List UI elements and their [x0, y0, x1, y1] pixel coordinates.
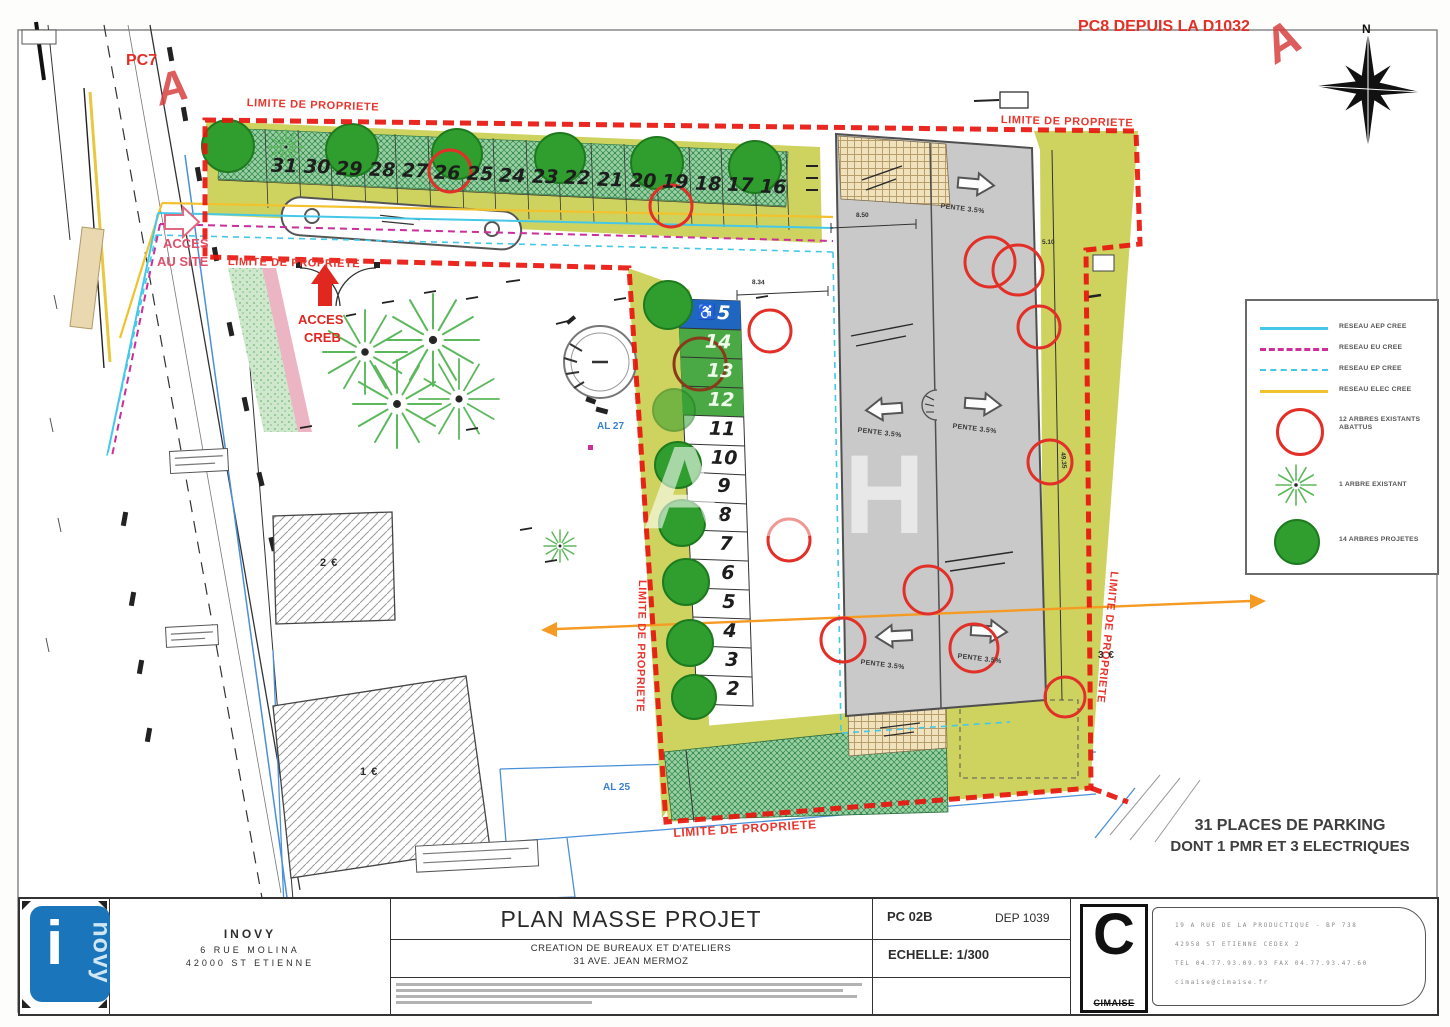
parcel-al27-label: AL 27 [597, 421, 624, 432]
parking-number: 4 [718, 620, 743, 643]
watermark-block [752, 462, 818, 536]
legend-existing-tree-icon [1272, 461, 1320, 509]
parking-number: 13 [707, 360, 732, 383]
parking-number: 30 [304, 156, 329, 179]
legend-line-eu [1260, 348, 1328, 351]
acces-site-label-1: ACCES [163, 236, 209, 251]
cimaise-logo-c: C [1093, 901, 1135, 968]
doc-number: PC 02B [887, 909, 933, 924]
building3-label: 3 € [1098, 650, 1115, 661]
pc8-label: PC8 DEPUIS LA D1032 [1078, 18, 1250, 36]
parking-number: 2 [721, 678, 746, 701]
parking-number: 29 [336, 158, 361, 181]
dim-834: 8.34 [752, 279, 765, 286]
cimaise-logo-name: CIMAISE [1083, 998, 1145, 1008]
parking-number: 25 [467, 163, 492, 186]
site-plan-sheet: PC7 A PC8 DEPUIS LA D1032 A N LIMITE DE … [0, 0, 1450, 1027]
watermark-letter-a: A [642, 420, 727, 556]
dim-510: 5.10 [1042, 239, 1055, 246]
drawing-subtitle2: 31 AVE. JEAN MERMOZ [390, 956, 872, 967]
parking-number: 27 [402, 160, 427, 183]
divider [390, 977, 1070, 978]
parking-number: 26 [434, 162, 459, 185]
cimaise-address1: 19 A RUE DE LA PRODUCTIQUE - BP 738 [1175, 922, 1357, 929]
parking-number: 6 [716, 562, 741, 585]
building2-label: 2 € [320, 557, 338, 569]
limite-label-mid-left: LIMITE DE PROPRIETE [228, 256, 361, 270]
parking-number: 19 [662, 171, 687, 194]
legend-projected-tree-icon [1274, 519, 1320, 565]
parking-number: 5 [717, 591, 742, 614]
parking-number: 18 [695, 173, 720, 196]
inovy-logo: i novy [30, 906, 110, 1002]
parking-number: 14 [705, 331, 730, 354]
divider [390, 939, 1070, 940]
drawing-title: PLAN MASSE PROJET [390, 906, 872, 933]
divider [872, 899, 873, 1014]
legend-line-elec [1260, 390, 1328, 393]
client-address2: 42000 ST ETIENNE [120, 958, 380, 968]
parking-number: 22 [564, 167, 589, 190]
drawing-subtitle1: CREATION DE BUREAUX ET D'ATELIERS [390, 943, 872, 954]
parking-number: 28 [369, 159, 394, 182]
disclaimer-text-block [396, 983, 862, 1007]
north-label: N [1362, 22, 1371, 36]
divider [1070, 899, 1071, 1014]
parcel-al25-label: AL 25 [603, 782, 630, 793]
inovy-logo-i: i [46, 908, 63, 979]
scale-label: ECHELLE: 1/300 [888, 947, 989, 962]
legend-line-ep [1260, 369, 1328, 371]
legend-felled-tree-icon [1276, 408, 1324, 456]
limite-label-mid-vertical: LIMITE DE PROPRIETE [634, 580, 648, 713]
legend-label: 14 ARBRES PROJETES [1339, 536, 1419, 544]
parking-note-line1: 31 PLACES DE PARKING [1140, 817, 1440, 835]
parking-number: 23 [532, 166, 557, 189]
acces-creb-label-1: ACCES [298, 312, 344, 327]
cimaise-address2: 42958 ST ETIENNE CEDEX 2 [1175, 941, 1300, 948]
legend-label: RESEAU ELEC CREE [1339, 386, 1411, 394]
parking-number: 31 [271, 155, 296, 178]
inovy-logo-novy: novy [87, 921, 116, 983]
corner-mark [22, 999, 31, 1008]
parking-number: 20 [630, 170, 655, 193]
parking-number: 17 [727, 174, 752, 197]
cimaise-email: cimaise@cimaise.fr [1175, 979, 1269, 986]
legend-line-aep [1260, 327, 1328, 330]
acces-creb-label-2: CREB [304, 330, 341, 345]
legend-box: RESEAU AEP CREE RESEAU EU CREE RESEAU EP… [1245, 299, 1439, 575]
cimaise-logo: C CIMAISE [1080, 904, 1148, 1013]
cimaise-contact: 19 A RUE DE LA PRODUCTIQUE - BP 738 4295… [1152, 907, 1426, 1006]
cimaise-phone: TEL 04.77.93.09.93 FAX 04.77.93.47.60 [1175, 960, 1368, 967]
watermark-letter-h: H [844, 430, 925, 559]
callout-box [22, 30, 56, 44]
parking-number: 24 [499, 165, 524, 188]
parking-number: 12 [708, 389, 733, 412]
parking-number: 16 [760, 176, 785, 199]
legend-label: RESEAU AEP CREE [1339, 323, 1407, 331]
client-name: INOVY [120, 927, 380, 941]
title-block: i novy INOVY 6 RUE MOLINA 42000 ST ETIEN… [18, 897, 1439, 1016]
dim-4935: 49.35 [1059, 452, 1067, 469]
corner-mark [22, 901, 31, 910]
parking-number: 3 [720, 649, 745, 672]
legend-label: RESEAU EU CREE [1339, 344, 1402, 352]
parking-number: 21 [597, 169, 622, 192]
legend-label: 1 ARBRE EXISTANT [1339, 481, 1407, 489]
dim-850: 8.50 [856, 212, 869, 219]
legend-label: RESEAU EP CREE [1339, 365, 1402, 373]
parking-note-line2: DONT 1 PMR ET 3 ELECTRIQUES [1140, 838, 1440, 855]
building1-label: 1 € [360, 766, 378, 778]
acces-site-label-2: AU SITE [157, 254, 208, 269]
wheelchair-icon: ♿ [697, 303, 716, 321]
dep-number: DEP 1039 [995, 911, 1050, 925]
client-address1: 6 RUE MOLINA [120, 945, 380, 955]
legend-label: 12 ARBRES EXISTANTS ABATTUS [1339, 416, 1431, 432]
